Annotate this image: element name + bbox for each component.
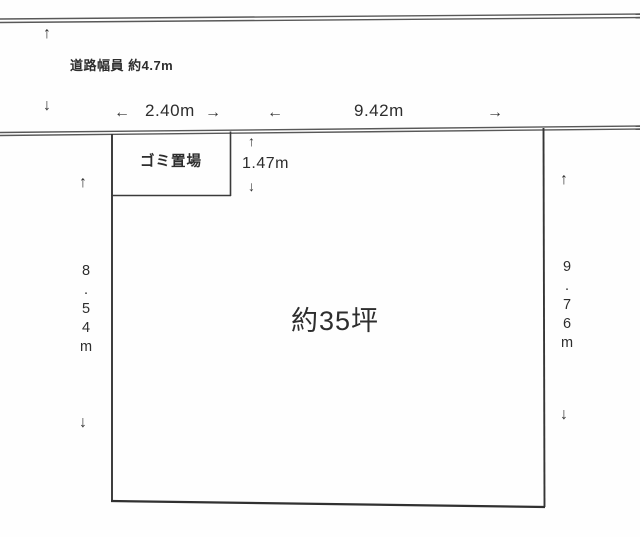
land-plot-diagram: ↑ 道路幅員 約4.7m ↓ ← 2.40m → ← 9.42m → ゴミ置場 … xyxy=(0,0,640,537)
garbage-depth-arrow-up-icon: ↑ xyxy=(248,134,255,148)
garbage-depth-arrow-down-icon: ↓ xyxy=(248,179,255,193)
road-width-label: 道路幅員 約4.7m xyxy=(70,59,173,72)
plot-bottom-boundary xyxy=(111,501,545,507)
left-side-dimension: 8.54m xyxy=(75,263,97,358)
garbage-width-dimension: 2.40m xyxy=(145,102,195,119)
left-side-arrow-up-icon: ↑ xyxy=(79,175,87,191)
frontage-arrow-left-icon: ← xyxy=(267,105,283,121)
plot-right-boundary xyxy=(544,128,545,507)
frontage-dimension: 9.42m xyxy=(354,102,404,119)
garbage-depth-dimension: 1.47m xyxy=(242,156,289,172)
left-side-arrow-down-icon: ↓ xyxy=(79,415,87,431)
garbage-width-arrow-right-icon: → xyxy=(205,105,221,121)
road-width-arrow-up-icon: ↑ xyxy=(43,26,51,42)
road-width-arrow-down-icon: ↓ xyxy=(43,98,51,114)
right-side-arrow-up-icon: ↑ xyxy=(560,172,568,188)
garbage-area-label: ゴミ置場 xyxy=(112,155,230,170)
right-side-arrow-down-icon: ↓ xyxy=(560,407,568,423)
right-side-dimension: 9.76m xyxy=(556,259,578,354)
frontage-arrow-right-icon: → xyxy=(487,105,503,121)
plot-area-label: 約35坪 xyxy=(245,308,425,335)
garbage-width-arrow-left-icon: ← xyxy=(114,105,130,121)
